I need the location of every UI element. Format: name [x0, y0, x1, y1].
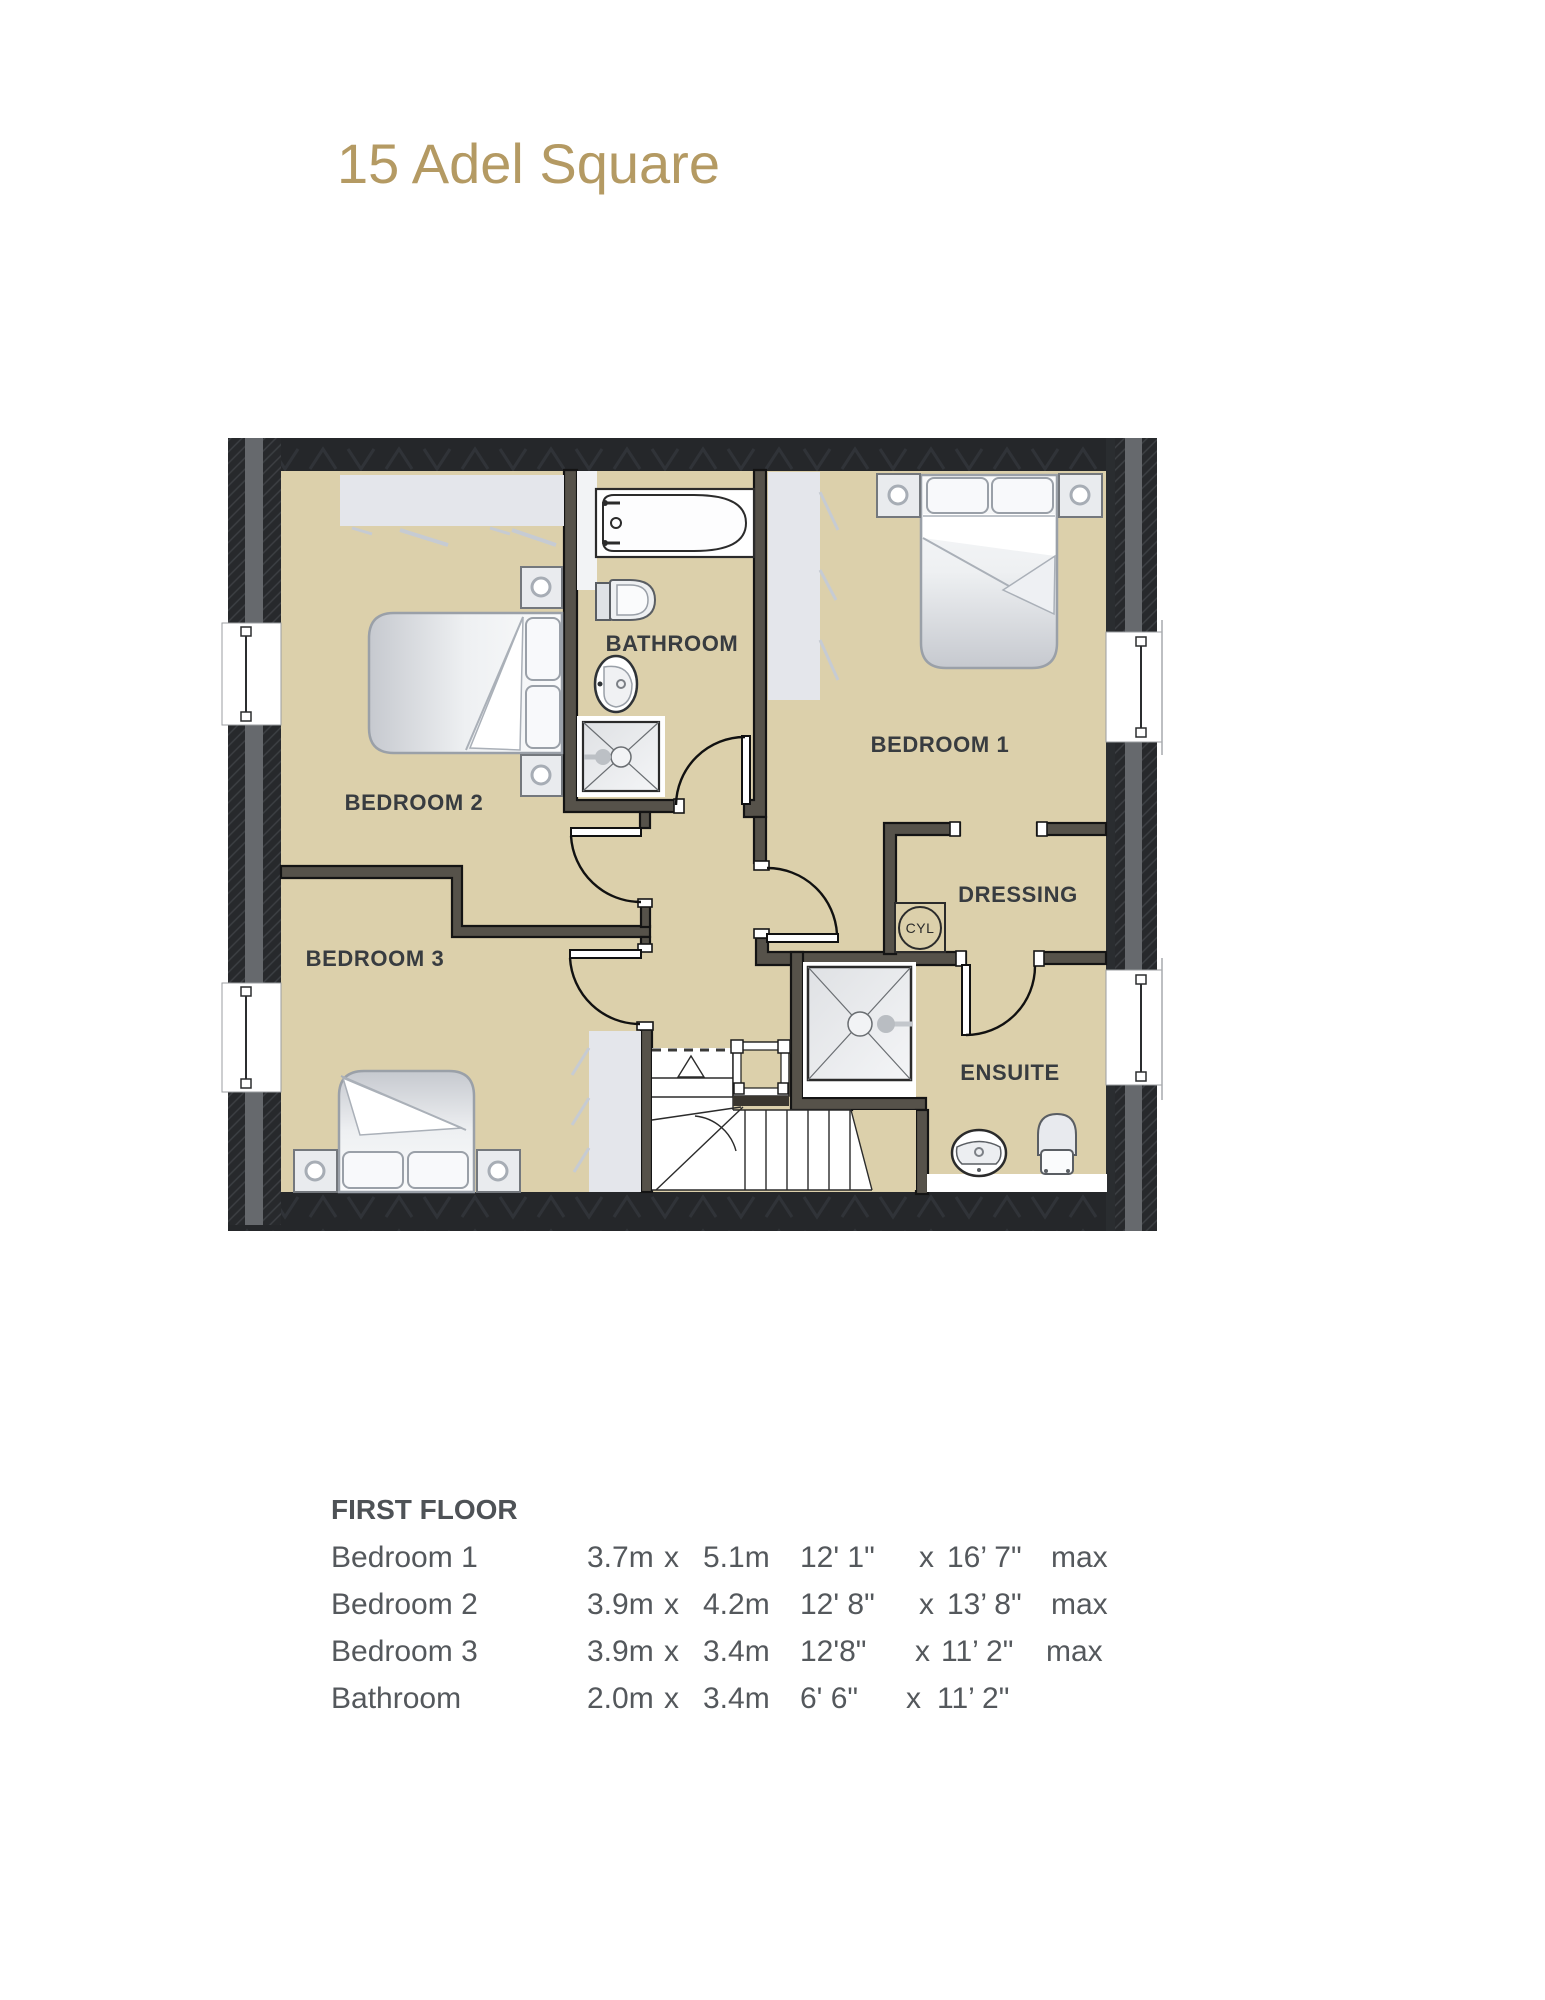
svg-text:DRESSING: DRESSING [958, 882, 1078, 907]
svg-text:15 Adel Square: 15 Adel Square [337, 132, 720, 195]
svg-text:13’ 8": 13’ 8" [947, 1588, 1022, 1621]
svg-text:3.4m: 3.4m [703, 1682, 770, 1715]
svg-text:11’ 2": 11’ 2" [941, 1635, 1013, 1668]
svg-text:x: x [664, 1541, 679, 1574]
svg-text:Bedroom 1: Bedroom 1 [331, 1541, 478, 1574]
svg-text:3.9m: 3.9m [587, 1588, 654, 1621]
svg-text:x: x [664, 1682, 679, 1715]
svg-text:max: max [1051, 1541, 1108, 1574]
svg-text:BEDROOM 2: BEDROOM 2 [345, 790, 484, 815]
svg-text:max: max [1051, 1588, 1108, 1621]
svg-text:CYL: CYL [906, 920, 935, 936]
svg-text:11’ 2": 11’ 2" [937, 1682, 1009, 1715]
svg-text:12' 1": 12' 1" [800, 1541, 875, 1574]
svg-text:3.7m: 3.7m [587, 1541, 654, 1574]
svg-text:3.9m: 3.9m [587, 1635, 654, 1668]
svg-text:x: x [906, 1682, 921, 1715]
svg-text:FIRST FLOOR: FIRST FLOOR [331, 1494, 518, 1525]
svg-text:Bedroom 2: Bedroom 2 [331, 1588, 478, 1621]
svg-text:3.4m: 3.4m [703, 1635, 770, 1668]
svg-text:x: x [919, 1588, 934, 1621]
svg-text:BEDROOM 1: BEDROOM 1 [871, 732, 1010, 757]
svg-text:2.0m: 2.0m [587, 1682, 654, 1715]
svg-text:x: x [919, 1541, 934, 1574]
svg-text:BATHROOM: BATHROOM [606, 631, 739, 656]
svg-text:5.1m: 5.1m [703, 1541, 770, 1574]
svg-text:ENSUITE: ENSUITE [960, 1060, 1060, 1085]
svg-text:max: max [1046, 1635, 1103, 1668]
svg-text:BEDROOM 3: BEDROOM 3 [306, 946, 445, 971]
svg-text:6' 6": 6' 6" [800, 1682, 858, 1715]
svg-text:x: x [664, 1588, 679, 1621]
svg-text:x: x [915, 1635, 930, 1668]
svg-text:16’ 7": 16’ 7" [947, 1541, 1022, 1574]
svg-text:Bathroom: Bathroom [331, 1682, 461, 1715]
svg-text:12'8": 12'8" [800, 1635, 866, 1668]
svg-text:4.2m: 4.2m [703, 1588, 770, 1621]
svg-text:Bedroom 3: Bedroom 3 [331, 1635, 478, 1668]
svg-text:12' 8": 12' 8" [800, 1588, 875, 1621]
svg-text:x: x [664, 1635, 679, 1668]
